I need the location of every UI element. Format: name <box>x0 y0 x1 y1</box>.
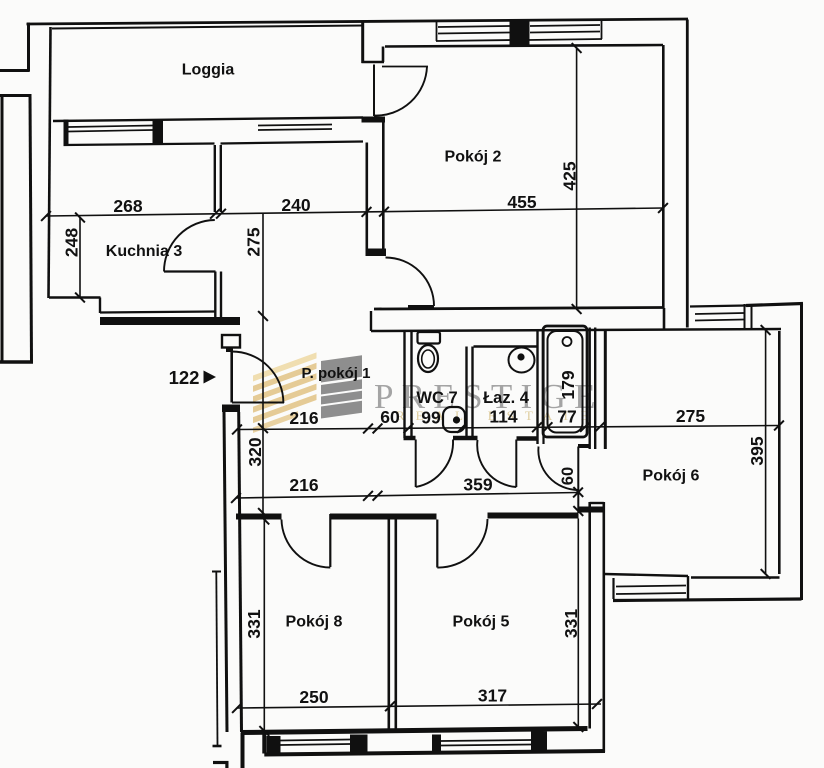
svg-text:425: 425 <box>560 161 580 190</box>
svg-text:Loggia: Loggia <box>182 62 235 79</box>
svg-text:114: 114 <box>489 407 517 427</box>
svg-text:Kuchnia 3: Kuchnia 3 <box>106 243 183 260</box>
svg-text:275: 275 <box>244 227 264 256</box>
svg-text:331: 331 <box>561 609 581 638</box>
svg-text:248: 248 <box>62 228 82 257</box>
svg-text:240: 240 <box>281 195 310 215</box>
svg-text:275: 275 <box>676 406 705 426</box>
svg-text:60: 60 <box>559 467 577 485</box>
svg-text:60: 60 <box>380 407 400 427</box>
svg-text:122: 122 <box>169 367 200 388</box>
svg-text:216: 216 <box>289 408 318 428</box>
svg-text:331: 331 <box>244 609 264 638</box>
svg-text:320: 320 <box>245 437 265 466</box>
svg-text:317: 317 <box>478 686 507 706</box>
svg-text:P. pokój 1: P. pokój 1 <box>302 365 371 382</box>
svg-text:Pokój 6: Pokój 6 <box>643 468 700 485</box>
svg-text:Pokój 2: Pokój 2 <box>445 149 502 166</box>
svg-text:99: 99 <box>421 408 441 428</box>
svg-text:395: 395 <box>747 436 767 465</box>
svg-text:179: 179 <box>558 370 578 399</box>
svg-text:77: 77 <box>557 407 576 427</box>
svg-text:Pokój 8: Pokój 8 <box>286 614 343 631</box>
svg-text:268: 268 <box>113 196 142 216</box>
svg-text:250: 250 <box>299 687 328 707</box>
svg-text:455: 455 <box>507 192 536 212</box>
svg-text:359: 359 <box>463 475 492 495</box>
svg-text:Pokój 5: Pokój 5 <box>453 614 510 631</box>
svg-text:WC 7: WC 7 <box>416 389 457 407</box>
svg-text:216: 216 <box>289 475 318 495</box>
svg-text:Łaz. 4: Łaz. 4 <box>483 389 530 407</box>
